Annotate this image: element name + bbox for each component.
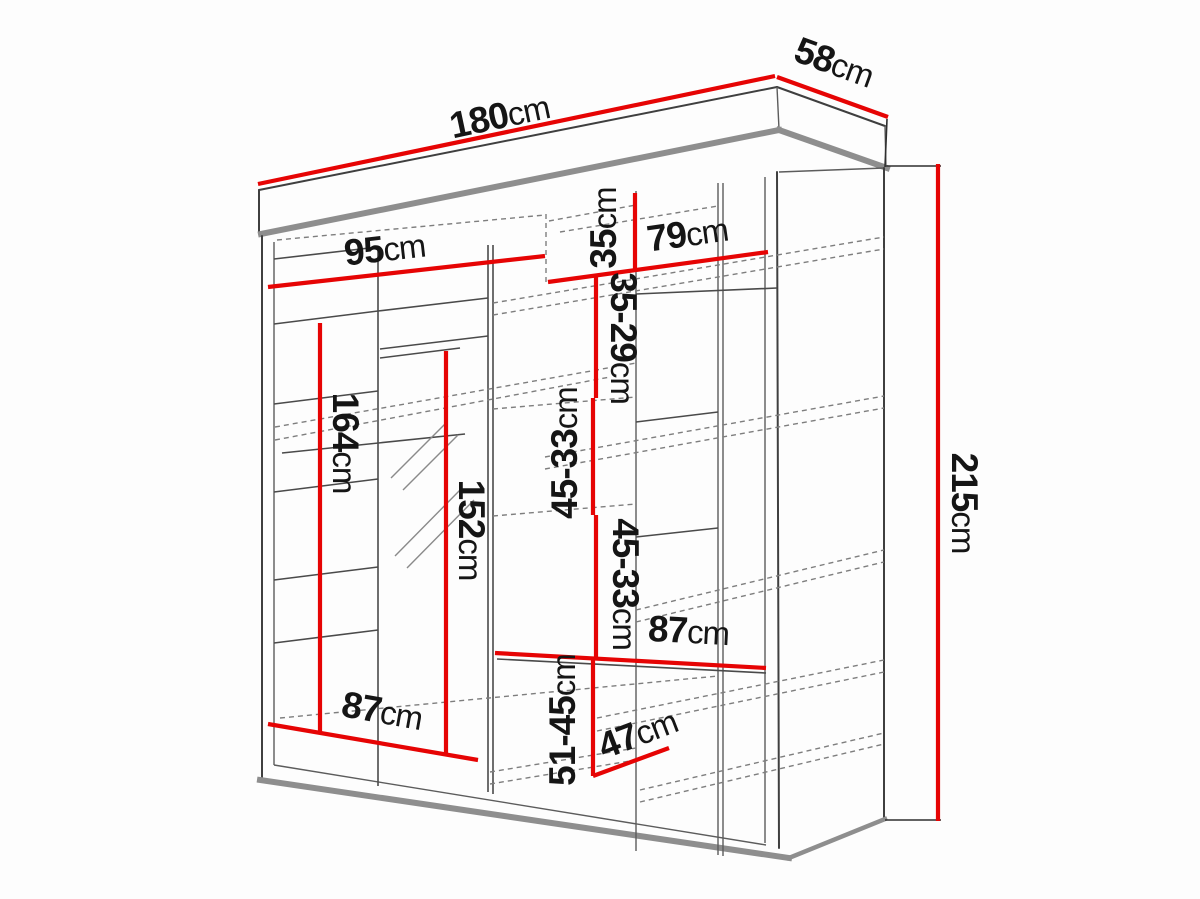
dimension-ticks — [885, 119, 941, 820]
label-shelf-gap-upper: 35-29cm — [603, 272, 644, 404]
label-shelf-gap-mid-2: 45-33cm — [605, 518, 646, 650]
label-shelf-gap-mid-1: 45-33cm — [544, 387, 585, 519]
label-overall-height: 215cm — [944, 453, 985, 554]
label-shelf-width-left: 87cm — [339, 683, 426, 737]
cornice-outline — [259, 87, 887, 234]
label-left-section-width: 95cm — [342, 224, 427, 274]
label-compartment-width: 47cm — [592, 700, 682, 767]
wardrobe-dimension-diagram: 180cm 58cm 215cm 95cm 79cm 35cm 35-29cm … — [0, 0, 1200, 899]
label-top-compartment-height: 35cm — [583, 187, 624, 268]
label-overall-width: 180cm — [446, 85, 553, 146]
dim-line-overall-depth — [777, 77, 888, 117]
label-shelf-width-right: 87cm — [647, 608, 730, 653]
label-shelf-gap-lower: 51-45cm — [542, 654, 583, 786]
diagram-canvas: 180cm 58cm 215cm 95cm 79cm 35cm 35-29cm … — [0, 0, 1200, 899]
label-mirror-door-height: 152cm — [451, 480, 492, 581]
label-hanging-height-left: 164cm — [325, 393, 366, 494]
